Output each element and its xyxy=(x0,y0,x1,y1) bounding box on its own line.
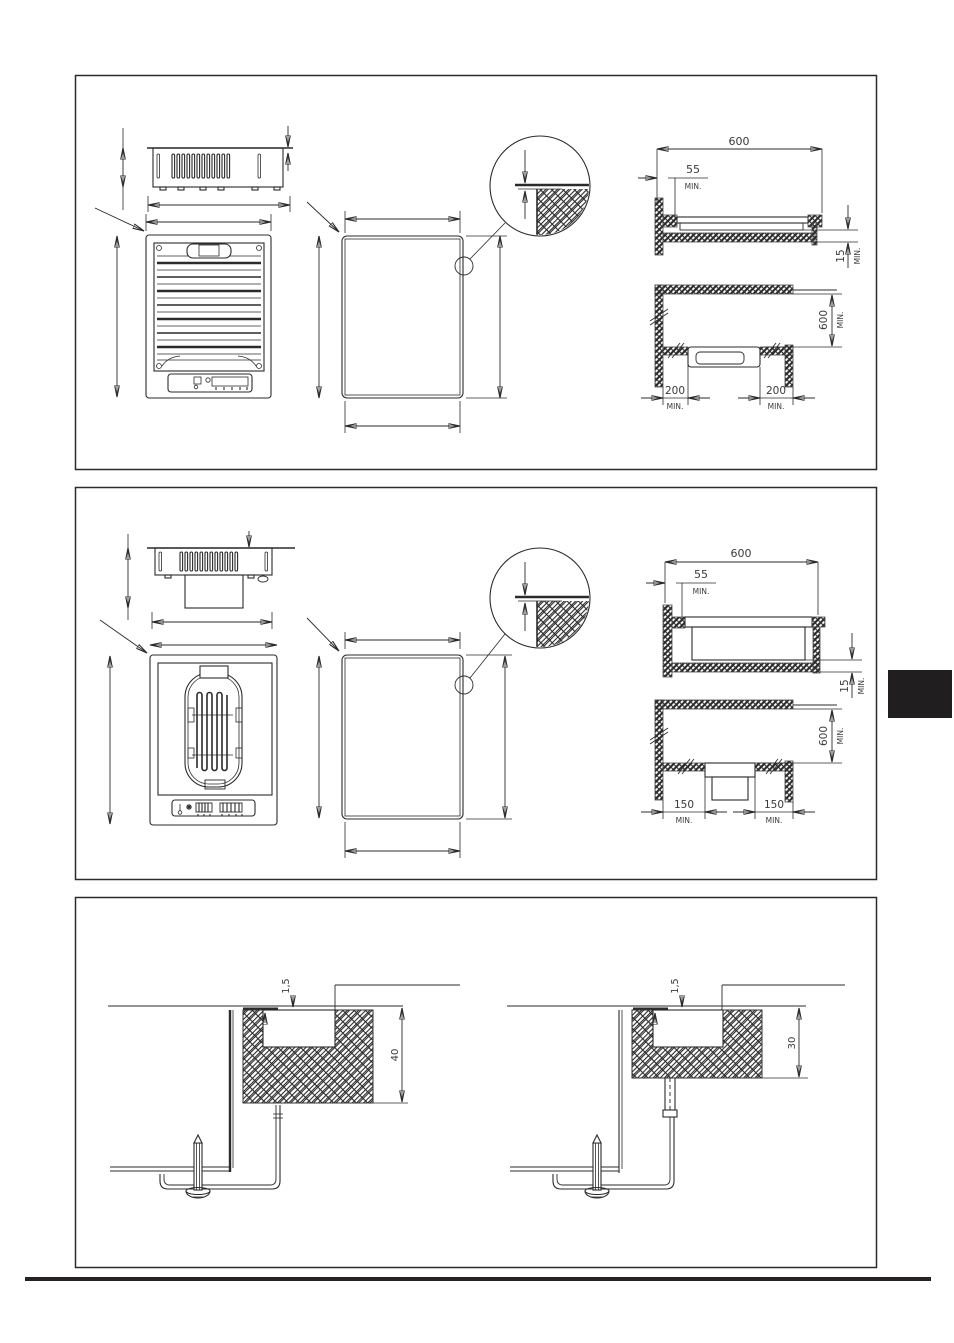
recess-depth-label: 30 xyxy=(787,1037,798,1050)
panel3-fixing-details: 40 1,5 xyxy=(108,978,845,1198)
front-clearance-unit: MIN. xyxy=(693,587,710,596)
rear-depth-unit: MIN. xyxy=(836,312,845,329)
panel2-side-view xyxy=(128,531,295,629)
left-clearance-unit: MIN. xyxy=(676,816,693,825)
front-clearance-value: 55 xyxy=(694,568,708,581)
knob-scale-left xyxy=(196,803,212,812)
glass-thickness-label: 1,5 xyxy=(670,978,681,993)
panel2-cutout-plan xyxy=(307,618,512,858)
vent-slots xyxy=(180,552,238,571)
right-clearance-unit: MIN. xyxy=(768,402,785,411)
page-bottom-rule xyxy=(25,1277,931,1281)
edge-gap-value: 15 xyxy=(835,249,847,262)
top-width-label: 600 xyxy=(731,547,752,560)
recess-depth-label: 40 xyxy=(390,1049,401,1062)
panel1-frame xyxy=(76,76,877,470)
edge-gap-unit: MIN. xyxy=(853,248,862,265)
panel1-side-view xyxy=(123,126,293,212)
front-clearance-value: 55 xyxy=(686,163,700,176)
right-clearance-value: 150 xyxy=(764,799,784,811)
spring-clamp xyxy=(553,1117,674,1189)
indicator-lamp-icon xyxy=(206,378,210,382)
top-width-label: 600 xyxy=(729,135,750,148)
panel1-clearance-plan: 600 MIN. 200 MIN. 200 MIN. xyxy=(641,285,845,411)
hanger-bracket xyxy=(663,1078,677,1117)
panel1-cutout-plan xyxy=(307,202,507,433)
edge-gap-value: 15 xyxy=(839,679,851,692)
detail-callout-circle xyxy=(455,257,473,275)
worktop-detail-30: 30 1,5 xyxy=(507,978,845,1198)
detail-callout-circle xyxy=(455,676,473,694)
rear-depth-value: 600 xyxy=(818,310,830,330)
installation-drawing: 600 55 MIN. 15 MIN. xyxy=(0,0,954,1343)
control-panel xyxy=(168,374,252,392)
panel2-clearance-plan: 600 MIN. 150 MIN. 150 MIN. xyxy=(641,700,845,825)
left-clearance-value: 200 xyxy=(665,385,685,397)
rear-depth-value: 600 xyxy=(818,726,830,746)
element-handle xyxy=(200,666,228,678)
rear-depth-unit: MIN. xyxy=(836,728,845,745)
right-clearance-value: 200 xyxy=(766,385,786,397)
heat-icon xyxy=(186,804,192,810)
panel1-top-view xyxy=(95,208,271,398)
right-clearance-unit: MIN. xyxy=(766,816,783,825)
panel1-hob-installation: 600 55 MIN. 15 MIN. xyxy=(95,126,862,433)
deep-well-box xyxy=(185,575,243,608)
panel2-top-view xyxy=(100,620,277,825)
well-section xyxy=(692,627,805,660)
panel3-frame xyxy=(76,898,877,1268)
left-clearance-unit: MIN. xyxy=(667,402,684,411)
glass-thickness-label: 1,5 xyxy=(281,978,292,993)
left-clearance-value: 150 xyxy=(674,799,694,811)
manual-page: 600 55 MIN. 15 MIN. xyxy=(0,0,954,1343)
panel1-cross-section: 600 55 MIN. 15 MIN. xyxy=(638,135,862,268)
control-panel xyxy=(172,800,255,816)
worktop-detail-40: 40 1,5 xyxy=(108,978,460,1198)
front-clearance-unit: MIN. xyxy=(685,182,702,191)
panel2-cross-section: 600 55 MIN. 15 MIN. xyxy=(646,547,866,698)
hob-front-outline xyxy=(705,763,755,777)
spring-clamp xyxy=(160,1105,283,1189)
well-front-outline xyxy=(712,777,748,800)
grill-grate-bars xyxy=(157,256,261,360)
control-scale xyxy=(212,377,248,386)
vent-slots xyxy=(172,154,230,178)
panel2-hob-installation: 600 55 MIN. 15 MIN. xyxy=(100,531,866,858)
chapter-tab-marker xyxy=(888,670,952,718)
panel1-edge-detail xyxy=(490,136,593,239)
edge-gap-unit: MIN. xyxy=(857,678,866,695)
knob-icon xyxy=(194,377,201,384)
heating-element xyxy=(188,693,242,771)
panel2-frame xyxy=(76,488,877,880)
panel2-edge-detail xyxy=(490,548,593,651)
